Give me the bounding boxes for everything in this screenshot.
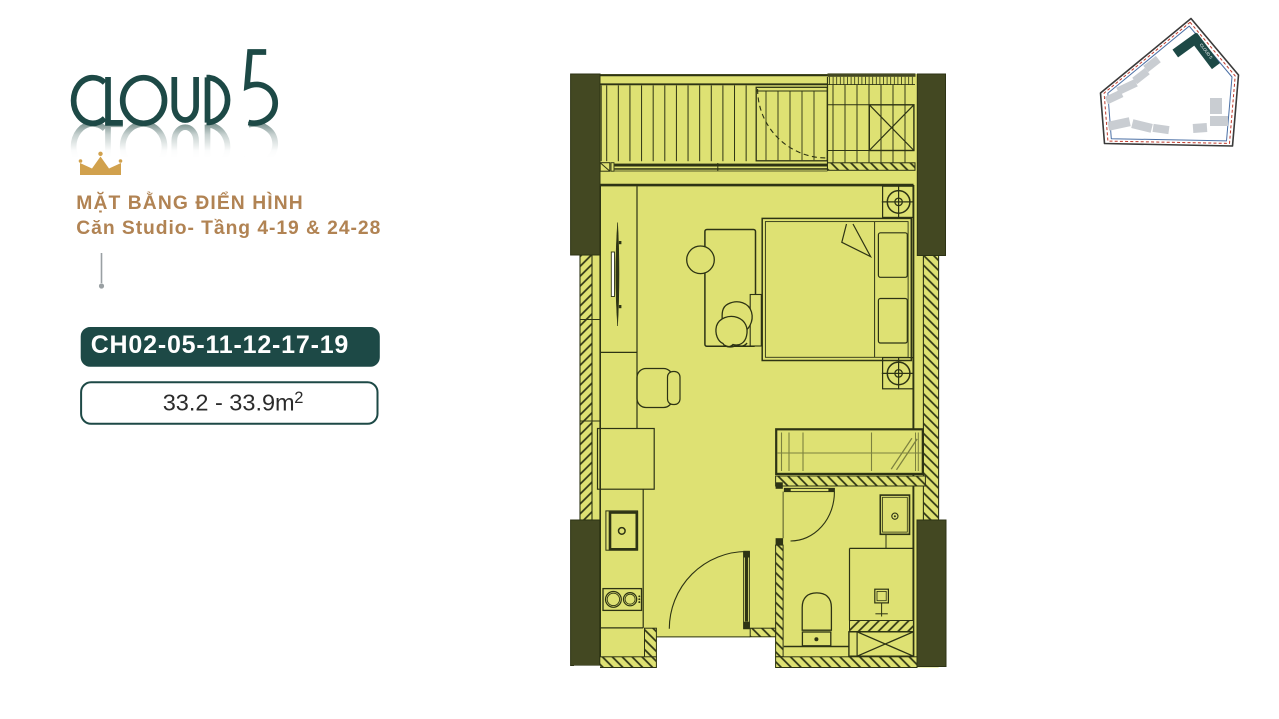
svg-text:Căn Studio- Tầng 4-19 & 24-28: Căn Studio- Tầng 4-19 & 24-28 [76, 218, 380, 239]
svg-text:CH02-05-11-12-17-19: CH02-05-11-12-17-19 [91, 331, 349, 359]
svg-text:MẶT BẰNG ĐIỂN HÌNH: MẶT BẰNG ĐIỂN HÌNH [76, 190, 302, 214]
svg-text:2: 2 [294, 389, 303, 407]
svg-text:33.2 - 33.9m: 33.2 - 33.9m [163, 389, 295, 415]
